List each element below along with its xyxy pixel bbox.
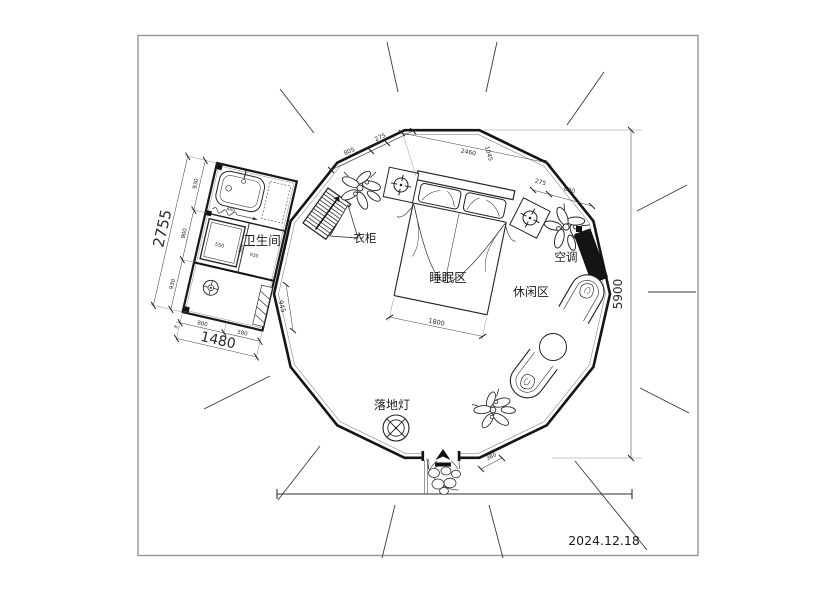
label-bathroom: 卫生间 [243, 233, 281, 248]
dim-bath-2755: 2755 [149, 208, 175, 249]
dim-bath-580: 580 [236, 329, 248, 337]
floor-lamp-symbol [383, 415, 409, 441]
dim-bath-900: 900 [181, 227, 189, 239]
dim-bath-1480: 1480 [199, 329, 237, 353]
entrance [422, 448, 461, 495]
label-floor-lamp: 落地灯 [374, 398, 410, 412]
date-text: 2024.12.18 [568, 533, 640, 548]
dim-5900: 5900 [611, 279, 625, 310]
dim-bath-930-top: 930 [192, 178, 200, 190]
label-air-conditioner: 空调 [555, 250, 578, 264]
dim-bath-90: 90 [173, 325, 178, 330]
floor-plan-drawing: 400 550 900 930 930 900 930 2755 90 [0, 0, 837, 592]
bathroom-block: 400 550 900 930 930 900 930 2755 90 [130, 149, 301, 360]
floor-plan-page: 400 550 900 930 930 900 930 2755 90 [0, 0, 837, 592]
door-post-left [422, 451, 425, 461]
dim-bath-800: 800 [197, 320, 209, 328]
label-wardrobe: 衣柜 [354, 231, 377, 245]
dim-bath-930-bottom: 930 [169, 278, 177, 290]
round-table [540, 334, 567, 361]
label-sleeping-area: 睡眠区 [429, 270, 467, 285]
nightstand-left [383, 167, 419, 203]
label-leisure-area: 休闲区 [513, 285, 549, 299]
ground-line [277, 489, 632, 499]
